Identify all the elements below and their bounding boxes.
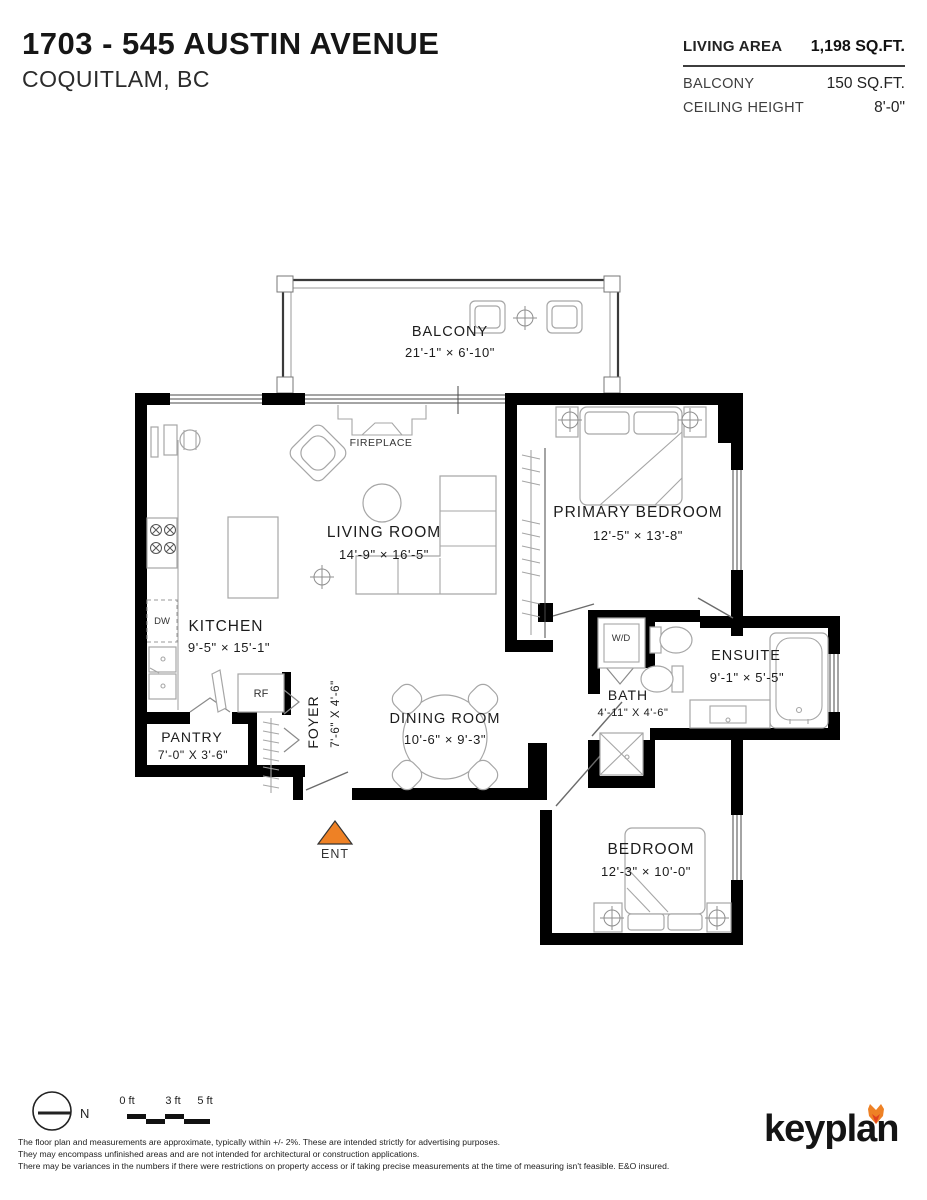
washer-dryer-label: W/D — [612, 633, 631, 644]
room-label-pantry: PANTRY — [161, 729, 223, 745]
scale-label-5: 5 ft — [197, 1095, 212, 1107]
living-room-furniture — [151, 422, 496, 594]
kitchen-island — [228, 517, 278, 598]
ensuite-vanity — [690, 700, 770, 728]
armchair — [287, 422, 349, 484]
disclaimer-line: They may encompass unfinished areas and … — [18, 1148, 669, 1160]
fireplace-label: FIREPLACE — [350, 437, 413, 449]
room-label-bedroom: BEDROOM — [607, 841, 694, 858]
room-dims-pantry: 7'-0" X 3'-6" — [158, 748, 228, 762]
light-symbol — [310, 565, 334, 589]
fireplace — [338, 405, 426, 435]
room-label-primary-bedroom: PRIMARY BEDROOM — [553, 504, 722, 521]
entry-label: ENT — [321, 847, 349, 861]
room-label-balcony: BALCONY — [412, 324, 488, 340]
room-dims-bedroom: 12'-3" × 10'-0" — [601, 864, 691, 879]
room-label-living: LIVING ROOM — [327, 524, 441, 541]
room-dims-dining: 10'-6" × 9'-3" — [404, 732, 486, 747]
window-living-left — [170, 395, 262, 403]
pillow — [668, 914, 702, 930]
window-ensuite — [830, 654, 838, 712]
ensuite-door — [698, 598, 733, 618]
cabinet-door-open — [212, 670, 226, 712]
kitchen-fixtures: DW RF — [147, 440, 284, 712]
disclaimer-line: There may be variances in the numbers if… — [18, 1160, 669, 1172]
room-dims-living: 14'-9" × 16'-5" — [339, 547, 429, 562]
floor-plan-page: 1703 - 545 AUSTIN AVENUE COQUITLAM, BC L… — [0, 0, 927, 1200]
scale-bar: 0 ft 3 ft 5 ft — [119, 1095, 212, 1124]
keyplan-fox-icon — [866, 1100, 890, 1128]
room-label-bath: BATH — [608, 687, 648, 703]
fridge-label: RF — [254, 688, 269, 700]
north-label: N — [80, 1106, 89, 1121]
foyer-closet — [263, 718, 279, 793]
window-bedroom — [733, 815, 741, 880]
scale-label-3: 3 ft — [165, 1095, 180, 1107]
room-dims-ensuite: 9'-1" × 5'-5" — [710, 670, 784, 685]
light-symbol — [513, 306, 537, 330]
kitchen-sink — [149, 647, 176, 699]
entry-arrow-icon — [318, 821, 352, 844]
room-dims-bath: 4'-11" X 4'-6" — [598, 707, 669, 719]
shower — [600, 733, 643, 775]
room-label-foyer: FOYER — [305, 695, 321, 748]
pillow — [628, 914, 664, 930]
pillow — [585, 412, 629, 434]
room-dims-kitchen: 9'-5" × 15'-1" — [188, 640, 270, 655]
room-dims-primary-bedroom: 12'-5" × 13'-8" — [593, 528, 683, 543]
side-table — [363, 484, 401, 522]
window-primary-bedroom — [733, 470, 741, 570]
foyer-closet-door-bottom — [284, 728, 299, 752]
ensuite-toilet — [650, 627, 692, 653]
dishwasher-label: DW — [154, 616, 170, 627]
room-label-kitchen: KITCHEN — [188, 618, 263, 635]
room-label-dining: DINING ROOM — [390, 711, 501, 727]
room-dims-balcony: 21'-1" × 6'-10" — [405, 345, 495, 360]
floor-plan-drawing: DW RF — [0, 0, 927, 1200]
scale-bar-segments — [127, 1114, 210, 1124]
room-dims-foyer: 7'-6" X 4'-6" — [330, 680, 342, 748]
pillow — [634, 412, 678, 434]
primary-bedroom-door — [553, 604, 594, 616]
entry-door — [306, 772, 348, 790]
window-balcony-slider — [305, 386, 505, 414]
entry-marker: ENT — [318, 821, 352, 861]
disclaimer-line: The floor plan and measurements are appr… — [18, 1136, 669, 1148]
desk-and-chair — [151, 425, 200, 457]
disclaimer-text: The floor plan and measurements are appr… — [18, 1136, 669, 1172]
north-arrow-icon: N — [33, 1092, 89, 1130]
scale-label-0: 0 ft — [119, 1095, 134, 1107]
room-label-ensuite: ENSUITE — [711, 648, 781, 664]
